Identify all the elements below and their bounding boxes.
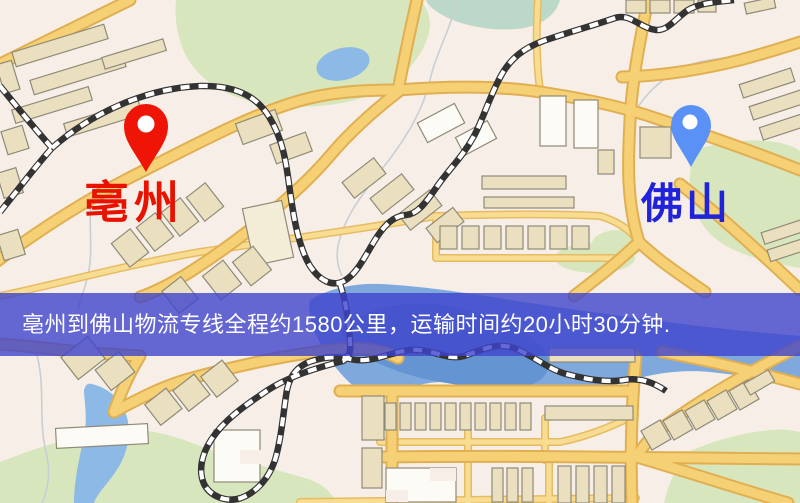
route-info-banner: 亳州到佛山物流专线全程约1580公里，运输时间约20小时30分钟.	[0, 293, 800, 356]
route-info-text: 亳州到佛山物流专线全程约1580公里，运输时间约20小时30分钟.	[0, 293, 800, 356]
map-graphics	[0, 0, 800, 503]
map-canvas: 亳州 佛山 亳州到佛山物流专线全程约1580公里，运输时间约20小时30分钟.	[0, 0, 800, 503]
destination-city-label: 佛山	[641, 183, 731, 225]
origin-city-label: 亳州	[84, 180, 184, 225]
